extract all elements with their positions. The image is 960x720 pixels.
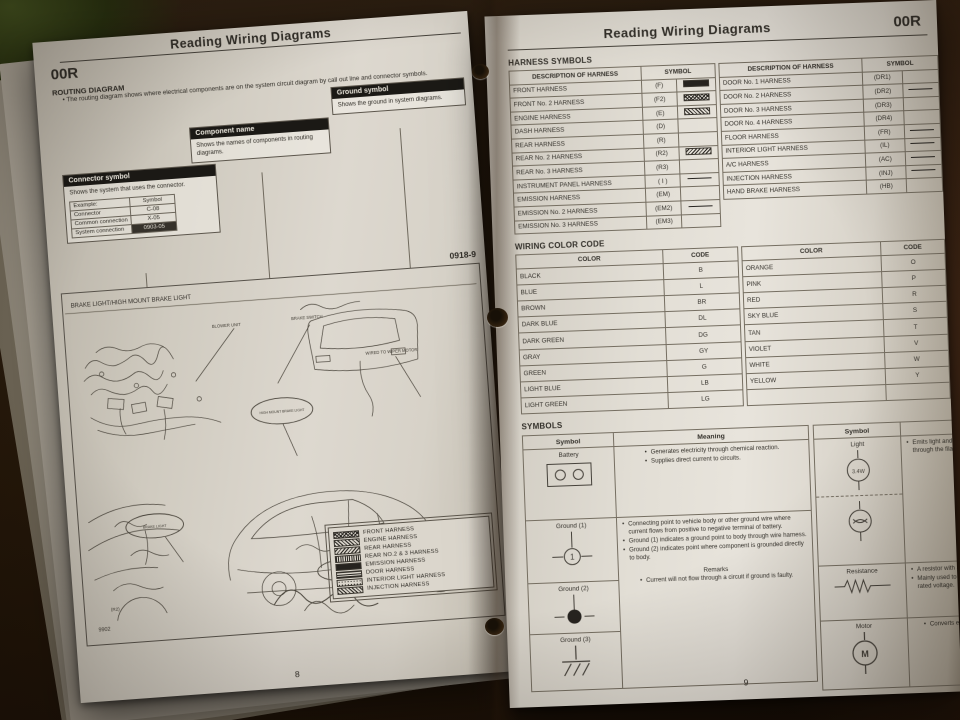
harness-symbol-code: (EM2) (646, 201, 682, 216)
left-page: Reading Wiring Diagrams 00R ROUTING DIAG… (32, 11, 515, 703)
ellipse-callout-label: HIGH MOUNT BRAKE LIGHT (259, 408, 304, 415)
harness-symbol-code: (AC) (865, 152, 905, 167)
meaning-bullet: Converts electrical energy to mechanical… (923, 616, 960, 629)
harness-symbol-code: (R2) (644, 147, 680, 162)
light-bulb-icon: 3.4W (838, 450, 879, 491)
connector-example-table: Example: Symbol ConnectorC-08Common conn… (69, 194, 178, 239)
right-page: Reading Wiring Diagrams 00R HARNESS SYMB… (484, 0, 960, 708)
harness-symbol-code: (EM) (645, 187, 681, 202)
light-wattage: 3.4W (852, 469, 866, 475)
harness-symbol-code: (FR) (864, 125, 904, 140)
harness-swatch-cell (904, 123, 941, 138)
grounds-meaning-cell: Connecting point to vehicle body or othe… (616, 510, 818, 689)
book-photo-scene: Reading Wiring Diagrams 00R ROUTING DIAG… (0, 0, 960, 720)
harness-pattern-swatch (911, 140, 935, 146)
ground-1-icon: 1 (549, 531, 595, 575)
connector-symbol-callout: Connector symbol Shows the system that u… (62, 164, 221, 244)
binder-hole (487, 308, 508, 327)
harness-symbols-tables: DESCRIPTION OF HARNESS SYMBOL FRONT HARN… (508, 55, 944, 235)
resistance-symbol-cell: Resistance (818, 563, 908, 622)
harness-pattern-swatch (684, 93, 710, 101)
callout-leader-line (146, 273, 148, 287)
harness-pattern-swatch (910, 127, 934, 133)
harness-pattern-swatch (911, 154, 935, 160)
ground1-symbol-cell: Ground (1) 1 (525, 517, 619, 584)
harness-table-left: DESCRIPTION OF HARNESS SYMBOL FRONT HARN… (508, 63, 721, 235)
color-table-right: COLOR CODE ORANGEOPINKPREDRSKY BLUESTANT… (741, 239, 951, 407)
color-code (886, 382, 951, 401)
routing-diagram-figure: 0918-9 BRAKE LIGHT/HIGH MOUNT BRAKE LIGH… (61, 263, 506, 647)
harness-pattern-swatch (686, 148, 712, 156)
resistance-meaning-cell: A resistor with a constant resistance va… (905, 557, 960, 619)
binder-hole (485, 618, 504, 635)
double-filament-bulb-icon (840, 501, 881, 542)
harness-pattern-swatch (684, 107, 710, 115)
harness-symbol-code: ( I ) (645, 174, 681, 189)
harness-symbol-code: (HB) (866, 179, 906, 194)
motor-letter: M (861, 649, 869, 659)
harness-symbol-code: (INJ) (866, 165, 906, 180)
dashed-divider (816, 494, 902, 498)
harness-swatch-cell (679, 145, 718, 160)
harness-pattern-swatch (909, 86, 933, 92)
color-code: LG (667, 390, 743, 409)
harness-swatch-cell (677, 77, 716, 92)
meaning-bullet: Emits light and generates heat when curr… (905, 434, 960, 456)
harness-symbol-code: (F) (641, 79, 677, 94)
symbols-tables: Symbol Meaning Battery (522, 420, 960, 702)
legend-pattern-swatch (337, 586, 363, 595)
harness-swatch-cell (678, 104, 717, 119)
figure-number: 0918-9 (449, 249, 476, 261)
harness-symbol-code: (EM3) (646, 214, 682, 229)
battery-meaning-cell: Generates electricity through chemical r… (613, 439, 812, 518)
color-table-left: COLOR CODE BLACKBBLUELBROWNBRDARK BLUEDL… (515, 247, 744, 415)
motor-label: Motor (856, 623, 872, 631)
harness-swatch-cell (679, 132, 718, 147)
ground-2-icon (552, 594, 597, 630)
callout-leader-line (400, 128, 411, 268)
figure-annotation: BRAKE SWITCH (291, 314, 323, 321)
battery-symbol-cell: Battery (522, 446, 617, 521)
light-meaning-cell: Emits light and generates heat when curr… (900, 430, 960, 564)
meaning-bullet: Current will not flow through a circuit … (639, 572, 793, 586)
section-code: 00R (50, 65, 79, 84)
harness-swatch-cell (903, 110, 940, 125)
figure-legend: FRONT HARNESSENGINE HARNESSREAR HARNESSR… (328, 516, 495, 600)
component-name-callout: Component name Shows the names of compon… (189, 117, 331, 163)
harness-swatch-cell (680, 172, 719, 187)
meaning-bullet: A resistor with a constant resistance va… (910, 561, 960, 575)
harness-swatch-cell (904, 137, 941, 152)
battery-label: Battery (559, 452, 579, 460)
harness-swatch-cell (682, 213, 721, 228)
ground2-symbol-cell: Ground (2) (527, 580, 621, 635)
section-code: 00R (893, 13, 921, 31)
wiring-color-code-tables: COLOR CODE BLACKBBLUELBROWNBRDARK BLUEDL… (515, 239, 951, 415)
harness-swatch-cell (681, 199, 720, 214)
harness-symbol-code: (DR2) (863, 84, 903, 99)
harness-symbol-code: (E) (642, 106, 678, 121)
connector-example-symbol: 0903-05 (132, 221, 178, 233)
motor-icon: M (844, 632, 886, 675)
harness-swatch-cell (902, 83, 939, 98)
binder-hole (472, 64, 489, 79)
svg-text:1: 1 (570, 553, 575, 562)
figure-annotation: BLOWER UNIT (212, 322, 242, 329)
harness-symbol-code: (DR3) (863, 98, 903, 113)
symbols-table-right: Symbol Meaning Light (813, 416, 960, 691)
harness-swatch-cell (677, 91, 716, 106)
figure-caption: BRAKE LIGHT/HIGH MOUNT BRAKE LIGHT (70, 295, 191, 310)
ground3-label: Ground (3) (560, 636, 591, 644)
symbols-table-left: Symbol Meaning Battery (522, 425, 819, 701)
ground-3-icon (554, 645, 599, 683)
ground1-label: Ground (1) (556, 523, 587, 531)
harness-symbol-code: (R3) (644, 160, 680, 175)
harness-swatch-cell (902, 69, 939, 84)
harness-symbol-code: (R) (643, 133, 679, 148)
battery-icon (545, 460, 594, 490)
callout-leader-line (261, 172, 270, 278)
ground2-label: Ground (2) (558, 585, 589, 593)
harness-swatch-cell (903, 96, 940, 111)
harness-pattern-swatch (689, 203, 713, 209)
light-symbol-cell: Light 3.4W (813, 436, 906, 567)
harness-symbol-code: (F2) (642, 92, 678, 107)
figure-corner-note: 9902 (98, 627, 111, 634)
figure-annotation: (R2) (111, 606, 121, 612)
harness-pattern-swatch (912, 168, 936, 174)
light-label: Light (850, 441, 864, 448)
harness-swatch-cell (905, 164, 942, 179)
resistance-label: Resistance (846, 568, 877, 576)
harness-table-right: DESCRIPTION OF HARNESS SYMBOL DOOR No. 1… (718, 55, 943, 200)
harness-swatch-cell (681, 186, 720, 201)
remarks-label: Remarks (703, 566, 728, 574)
harness-swatch-cell (905, 151, 942, 166)
harness-swatch-cell (678, 118, 717, 133)
harness-swatch-cell (906, 178, 943, 193)
harness-symbol-code: (D) (643, 119, 679, 134)
harness-swatch-cell (680, 159, 719, 174)
page-title: Reading Wiring Diagrams (507, 17, 867, 45)
resistor-icon (834, 576, 891, 596)
harness-pattern-swatch (683, 80, 709, 88)
harness-pattern-swatch (688, 176, 712, 182)
